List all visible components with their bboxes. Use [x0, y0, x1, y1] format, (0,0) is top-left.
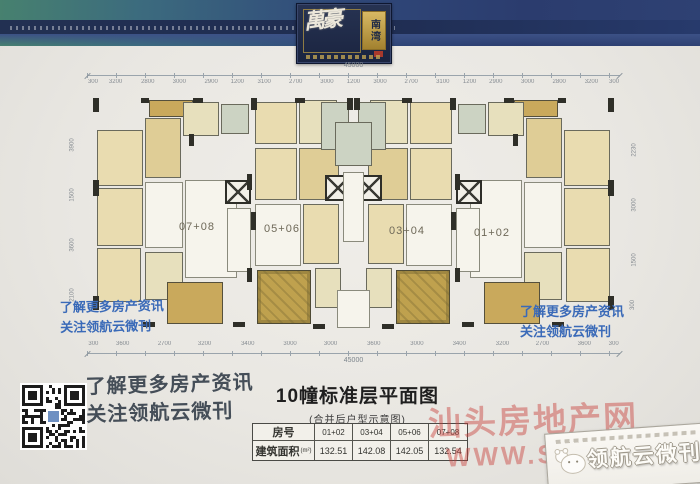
table-cell: 房号 — [253, 424, 315, 441]
dimension-segment: 3600 — [351, 341, 397, 347]
plan-room — [183, 102, 219, 136]
wall-segment — [608, 180, 614, 196]
dimension-segment: 3100 — [248, 79, 281, 85]
brand-seal: 南湾 — [362, 11, 386, 50]
table-cell: 05+06 — [391, 424, 429, 441]
dimension-segment: 3100 — [426, 79, 459, 85]
dimension-segment: 2800 — [132, 79, 163, 85]
wall-segment — [251, 212, 256, 230]
dimension-segment: 2700 — [146, 341, 184, 347]
table-cell: 03+04 — [353, 424, 391, 441]
wall-segment — [141, 98, 149, 103]
dimension-segment: 2700 — [281, 79, 311, 85]
wall-segment — [462, 322, 474, 327]
dimension-segment: 3400 — [226, 341, 270, 347]
plan-room — [97, 130, 143, 186]
brand-seal-text: 南湾 — [367, 19, 382, 43]
dimension-label-side: 3600 — [70, 238, 76, 251]
dimension-label-side: 1500 — [70, 188, 76, 201]
plan-room — [456, 208, 480, 272]
wall-segment — [504, 98, 514, 103]
table-cell: 142.05 — [391, 441, 429, 460]
plan-room — [526, 118, 562, 178]
dimension-segment: 2900 — [480, 79, 512, 85]
dimension-segment: 300 — [87, 79, 99, 85]
promo-caption-right: 了解更多房产资讯 关注领航云微刊 — [520, 302, 624, 342]
wall-segment — [347, 98, 353, 110]
promo-caption-footer: 了解更多房产资讯 关注领航云微刊 — [85, 369, 254, 429]
promo-right-line2: 关注领航云微刊 — [520, 322, 624, 342]
plan-room — [145, 118, 181, 178]
dimension-label-side: 2230 — [632, 143, 638, 156]
plan-room — [396, 270, 450, 324]
table-cell: 01+02 — [315, 424, 353, 441]
promo-footer-line2: 关注领航云微刊 — [86, 397, 255, 429]
plaque-subtext — [306, 55, 382, 59]
dimension-segment: 3000 — [397, 341, 437, 347]
promo-left-line1: 了解更多房产资讯 — [60, 296, 164, 318]
dimension-segment: 3000 — [270, 341, 310, 347]
dimension-segment: 3000 — [512, 79, 544, 85]
promo-right-line1: 了解更多房产资讯 — [520, 302, 624, 322]
dimension-segment: 2800 — [544, 79, 575, 85]
dimension-total-bottom: 45000 — [85, 357, 622, 364]
dimension-segment: 3200 — [99, 79, 132, 85]
dimension-segment: 3000 — [163, 79, 195, 85]
qr-center-logo — [46, 409, 61, 424]
plan-room — [145, 182, 183, 248]
plan-room — [488, 102, 524, 136]
wechat-badge: 领航云微刊 — [544, 422, 700, 484]
dimension-segment: 2900 — [195, 79, 227, 85]
wall-segment — [93, 98, 99, 112]
dimension-segment: 3200 — [183, 341, 225, 347]
wall-segment — [450, 98, 456, 110]
plan-room — [410, 102, 452, 144]
dimension-segment: 3600 — [100, 341, 146, 347]
wall-segment — [513, 134, 518, 146]
unit-label: 01+02 — [474, 227, 510, 239]
dimension-segment: 300 — [608, 79, 620, 85]
wall-segment — [251, 98, 257, 110]
dimension-line-top — [87, 75, 620, 76]
dimension-segment: 2700 — [396, 79, 426, 85]
promo-left-line2: 关注领航云微刊 — [60, 316, 164, 338]
plan-room — [167, 282, 223, 324]
wall-segment — [382, 324, 394, 329]
dimension-line-bottom — [87, 353, 620, 354]
wall-segment — [455, 174, 460, 190]
dimension-segment: 1200 — [343, 79, 364, 85]
wall-segment — [608, 98, 614, 112]
wall-segment — [247, 268, 252, 282]
plan-room — [255, 102, 297, 144]
wall-segment — [247, 174, 252, 190]
wall-segment — [295, 98, 305, 103]
wall-segment — [313, 324, 325, 329]
wall-segment — [189, 134, 194, 146]
qr-code — [22, 385, 85, 448]
dimension-segment: 3000 — [310, 341, 350, 347]
wall-segment — [455, 268, 460, 282]
plan-room — [564, 188, 610, 246]
dimension-segment: 1200 — [459, 79, 480, 85]
plan-room — [335, 122, 372, 166]
plan-room — [97, 188, 143, 246]
dimension-segment: 3200 — [481, 341, 523, 347]
plan-room — [97, 248, 141, 302]
plan-room — [566, 248, 610, 302]
dimension-segments-top: 3003200280030002900120031002700300012003… — [87, 79, 620, 85]
wall-segment — [233, 322, 245, 327]
unit-label: 03+04 — [389, 225, 425, 237]
promo-footer-line1: 了解更多房产资讯 — [85, 369, 254, 401]
dimension-segment: 3200 — [575, 79, 608, 85]
plan-room — [458, 104, 486, 134]
plan-room — [221, 104, 249, 134]
dimension-label-side: 1500 — [632, 253, 638, 266]
plan-room — [337, 290, 370, 328]
brand-calligraphy: 萬豪 — [303, 5, 363, 55]
dimension-segment: 3000 — [311, 79, 343, 85]
plan-room — [343, 172, 364, 242]
table-cell: 142.08 — [353, 441, 391, 460]
plan-room — [410, 148, 452, 200]
brand-plaque: 萬豪 南湾 — [296, 3, 392, 64]
dimension-label-side: 3000 — [632, 198, 638, 211]
unit-label: 07+08 — [179, 221, 215, 233]
plan-room — [564, 130, 610, 186]
plan-room — [303, 204, 339, 264]
wall-segment — [93, 180, 99, 196]
dimension-segment: 3400 — [437, 341, 481, 347]
badge-mascot-icon — [550, 444, 588, 476]
wall-segment — [451, 212, 456, 230]
dimension-segment: 1200 — [227, 79, 248, 85]
plan-room — [255, 204, 301, 266]
table-cell: 132.51 — [315, 441, 353, 460]
wall-segment — [402, 98, 412, 103]
wall-segment — [558, 98, 566, 103]
promo-caption-left: 了解更多房产资讯 关注领航云微刊 — [60, 296, 165, 338]
dimension-total-top: 45000 — [85, 62, 622, 69]
plan-room — [255, 148, 297, 200]
table-cell: 建筑面积(m²) — [253, 441, 315, 460]
photographed-page: 萬豪 南湾 45000 3003200280030002900120031002… — [0, 0, 700, 484]
unit-label: 05+06 — [264, 223, 300, 235]
dimension-segment: 3000 — [364, 79, 396, 85]
plan-room — [524, 182, 562, 248]
dimension-label-side: 3900 — [70, 138, 76, 151]
wall-segment — [193, 98, 203, 103]
badge-label: 领航云微刊 — [586, 436, 700, 474]
plan-room — [257, 270, 311, 324]
wall-segment — [354, 98, 360, 110]
plan-room — [227, 208, 251, 272]
dimension-label-side: 300 — [630, 300, 636, 310]
dimension-segment: 300 — [87, 341, 100, 347]
